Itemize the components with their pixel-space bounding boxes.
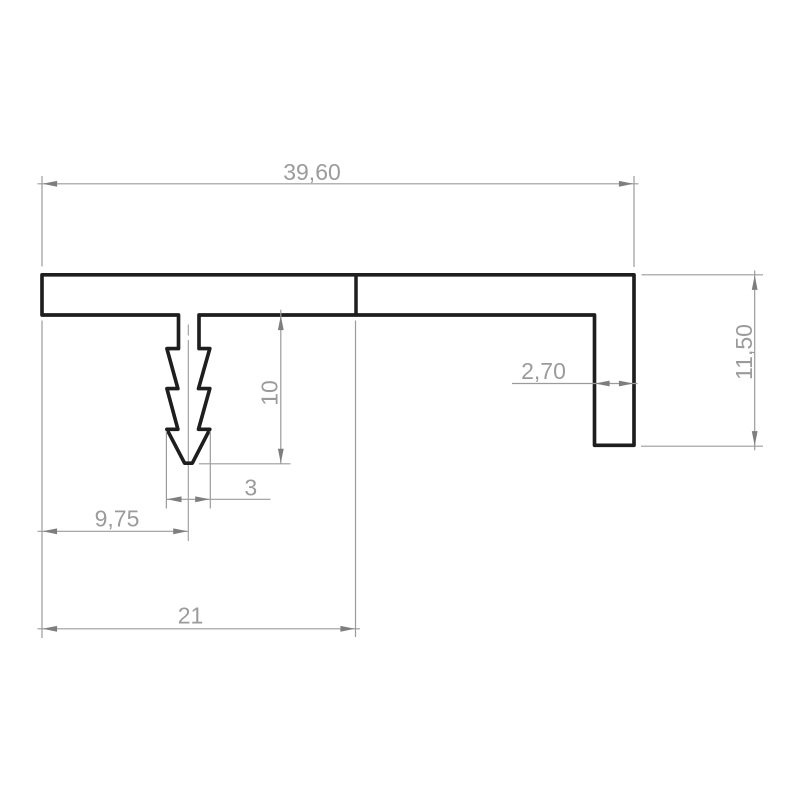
svg-text:39,60: 39,60 — [283, 159, 341, 185]
svg-text:2,70: 2,70 — [521, 358, 566, 384]
svg-text:9,75: 9,75 — [95, 505, 140, 531]
svg-text:21: 21 — [178, 602, 204, 628]
svg-text:3: 3 — [244, 474, 257, 500]
svg-text:10: 10 — [257, 380, 283, 406]
svg-text:11,50: 11,50 — [731, 324, 757, 380]
